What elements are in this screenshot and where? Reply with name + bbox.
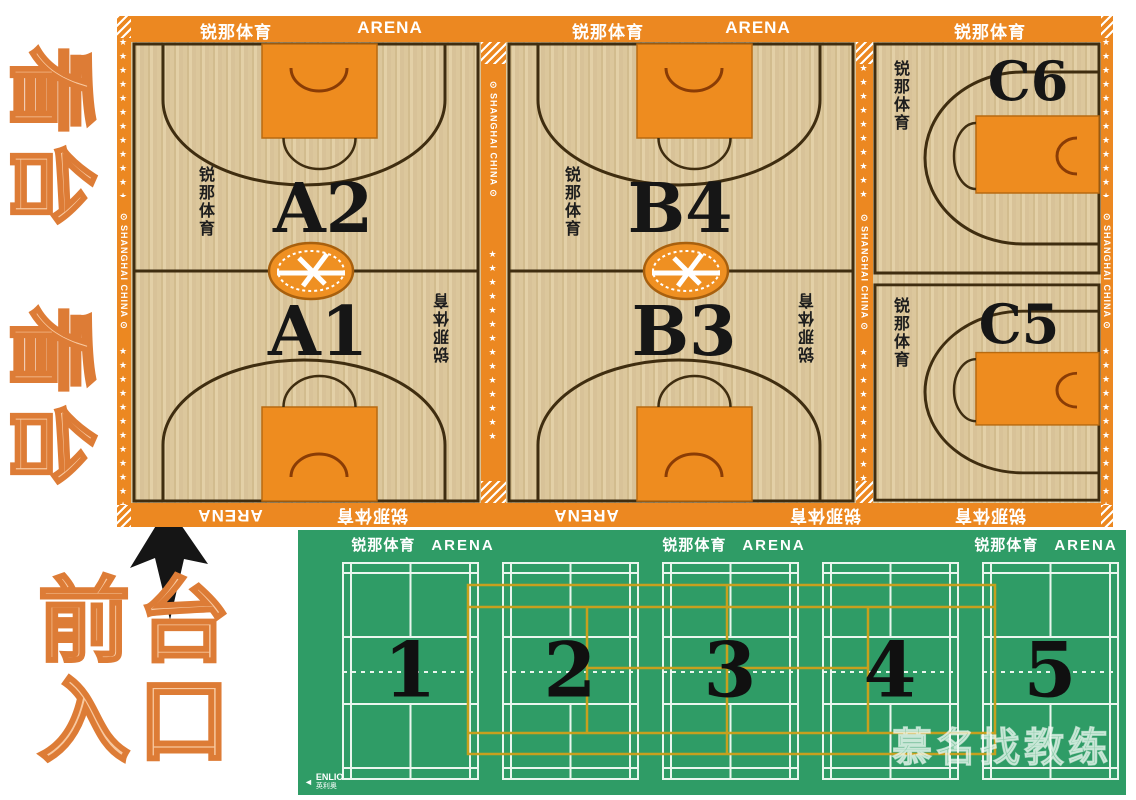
badminton-court-3: 3 <box>704 626 757 715</box>
enlio-wordmark: ENLIO 英利奥 <box>316 773 344 791</box>
top-border-arena-1: ARENA <box>357 18 422 38</box>
stars-icon: ★★★★★★★★★★★★★★ <box>1102 347 1112 506</box>
badminton-court-4: 4 <box>864 626 917 715</box>
venue-floor-plan: 看台 看台 前台 入口 锐那体育 ARENA 锐那体育 ARENA 锐那体育 A… <box>0 0 1136 800</box>
court-B-lines <box>506 42 856 503</box>
top-border-brand-cn-2: 锐那体育 <box>572 18 644 43</box>
wood-brand-B-top: 锐那体育 <box>560 166 580 238</box>
entrance-line1: 前台 <box>38 572 238 672</box>
green-header-3: 锐那体育ARENA <box>974 534 1117 555</box>
court-B-floor <box>506 42 856 503</box>
wood-brand-A-bottom: 锐那体育 <box>434 291 454 363</box>
wood-brand-C6: 锐那体育 <box>889 60 909 132</box>
enlio-name: ENLIO <box>316 773 344 782</box>
stars-icon: ★★★★★★★★★★★★★★ <box>489 214 499 481</box>
green-brand-arena: ARENA <box>1054 537 1117 554</box>
corner-hash-icon <box>856 481 873 503</box>
stars-icon: ★★★★★★★★★★★★★★ <box>119 38 129 197</box>
bottom-border-brand-cn-3: 锐那体育 <box>954 505 1026 530</box>
corner-hash-icon <box>856 42 873 64</box>
green-header-2: 锐那体育ARENA <box>662 534 805 555</box>
green-brand-arena: ARENA <box>431 537 494 554</box>
divider-B-C: ★★★★★★★★★★★★★★ ⊙ SHANGHAI CHINA ⊙ ★★★★★★… <box>856 42 873 503</box>
bottom-border-arena-1: ARENA <box>197 505 262 525</box>
corner-hash-icon <box>117 505 131 527</box>
corner-hash-icon <box>117 16 131 38</box>
stars-icon: ★★★★★★★★★★★★★★ <box>119 347 129 506</box>
badminton-court-5: 5 <box>1024 626 1077 715</box>
bottom-border-arena-2: ARENA <box>553 505 618 525</box>
shanghai-china-text: ⊙ SHANGHAI CHINA ⊙ <box>860 198 870 348</box>
divider-A-B: ⊙ SHANGHAI CHINA ⊙ ★★★★★★★★★★★★★★ <box>481 42 506 503</box>
stars-icon: ★★★★★★★★★★★★★★ <box>860 64 870 198</box>
stars-icon: ★★★★★★★★★★★★★★ <box>1102 38 1112 197</box>
green-brand-cn: 锐那体育 <box>974 537 1038 554</box>
floor-logo: ◄ ENLIO 英利奥 <box>304 773 343 791</box>
corner-hash-icon <box>481 42 506 64</box>
entrance-label: 前台 入口 <box>38 572 238 772</box>
green-header-1: 锐那体育ARENA <box>351 534 494 555</box>
green-brand-cn: 锐那体育 <box>351 537 415 554</box>
wood-brand-A-top: 锐那体育 <box>194 166 214 238</box>
entrance-line2: 入口 <box>38 672 238 772</box>
court-label-B3: B3 <box>632 292 737 372</box>
enlio-cn: 英利奥 <box>316 782 344 791</box>
basketball-section: 锐那体育 ARENA 锐那体育 ARENA 锐那体育 ARENA 锐那体育 AR… <box>117 16 1113 527</box>
watermark-text: 慕名找教练 <box>892 715 1112 773</box>
court-label-A1: A1 <box>268 292 368 372</box>
stands-label-bottom: 看台 <box>3 290 113 510</box>
top-border-brand-cn-1: 锐那体育 <box>200 18 272 43</box>
court-label-B4: B4 <box>628 169 733 249</box>
wood-brand-B-bottom: 锐那体育 <box>799 291 819 363</box>
top-border-arena-2: ARENA <box>725 18 790 38</box>
shanghai-china-text: ⊙ SHANGHAI CHINA ⊙ <box>489 64 499 214</box>
top-border-brand-cn-3: 锐那体育 <box>954 18 1026 43</box>
stars-icon: ★★★★★★★★★★★★★★ <box>860 348 870 482</box>
court-label-A2: A2 <box>273 169 373 249</box>
green-brand-cn: 锐那体育 <box>662 537 726 554</box>
wood-brand-C5: 锐那体育 <box>889 297 909 369</box>
court-A-lines <box>131 42 481 503</box>
court-A-floor <box>131 42 481 503</box>
badminton-section: 锐那体育ARENA 锐那体育ARENA 锐那体育ARENA 1 2 3 4 5 … <box>298 530 1126 795</box>
shanghai-china-text: ⊙ SHANGHAI CHINA ⊙ <box>1102 197 1112 347</box>
corner-hash-icon <box>1101 505 1113 527</box>
enlio-arrow-icon: ◄ <box>304 778 313 787</box>
badminton-court-1: 1 <box>384 626 437 715</box>
bottom-border-brand-cn-2: 锐那体育 <box>789 505 861 530</box>
court-label-C5: C5 <box>979 292 1060 356</box>
green-brand-arena: ARENA <box>742 537 805 554</box>
shanghai-china-text: ⊙ SHANGHAI CHINA ⊙ <box>119 197 129 347</box>
court-label-C6: C6 <box>988 49 1069 113</box>
corner-hash-icon <box>1101 16 1113 38</box>
border-left: ★★★★★★★★★★★★★★ ⊙ SHANGHAI CHINA ⊙ ★★★★★★… <box>117 16 131 527</box>
badminton-court-2: 2 <box>544 626 597 715</box>
border-right: ★★★★★★★★★★★★★★ ⊙ SHANGHAI CHINA ⊙ ★★★★★★… <box>1101 16 1113 527</box>
stands-label-top: 看台 <box>3 30 113 250</box>
bottom-border-brand-cn-1: 锐那体育 <box>336 505 408 530</box>
corner-hash-icon <box>481 481 506 503</box>
